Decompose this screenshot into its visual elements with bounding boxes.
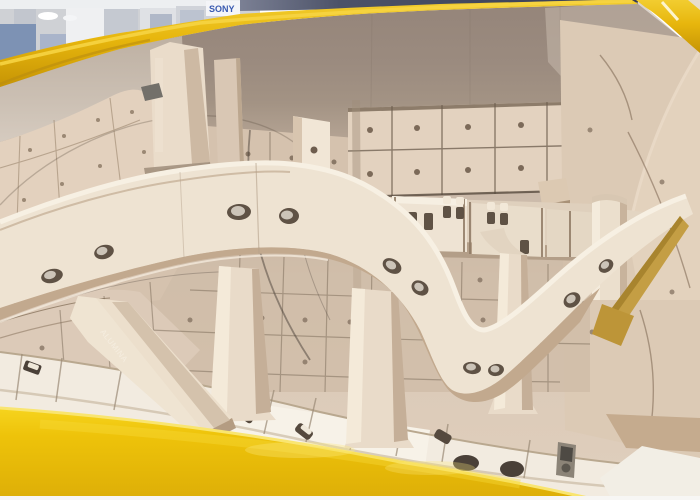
svg-text:SONY: SONY <box>209 4 235 14</box>
